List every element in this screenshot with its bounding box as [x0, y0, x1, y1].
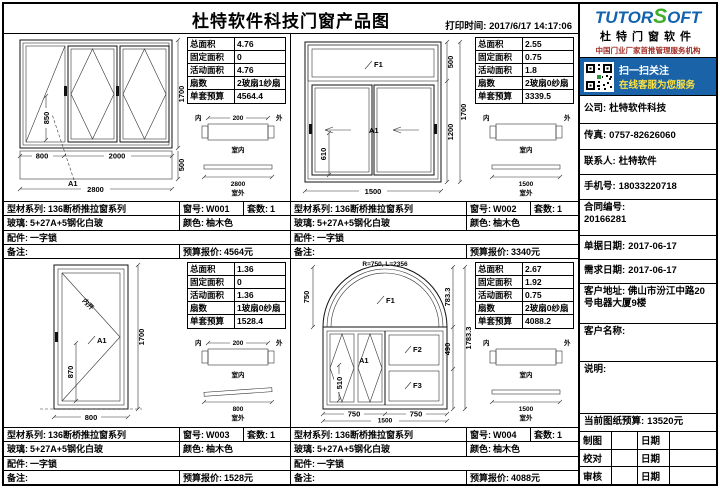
w002-spec-table: 总面积2.55 固定面积0.75 活动面积1.8 扇数2玻扇0纱扇 单套预算33…: [475, 37, 574, 104]
w004-tag: A1: [359, 356, 369, 365]
remark-cell: 备注:: [291, 471, 467, 484]
series-cell: 型材系列:136断桥推拉窗系列: [291, 202, 467, 215]
spec-row: 扇数2玻扇0纱扇: [476, 302, 573, 315]
spec-value: 0.75: [523, 289, 573, 301]
glass-cell: 玻璃:5+27A+5钢化白玻: [291, 216, 467, 229]
detail-out-label: 外: [564, 113, 571, 122]
sidebar-note: 说明:: [580, 362, 716, 414]
spec-label: 单套预算: [476, 315, 523, 328]
w001-drawing: 800 2000 2800 1700 500 850 A1: [4, 34, 196, 198]
info-row: 型材系列:136断桥推拉窗系列 窗号:W003 套数:1: [4, 428, 290, 442]
remark-cell: 备注:: [4, 245, 180, 258]
w004-spec-table: 总面积2.67 固定面积1.92 活动面积0.75 扇数2玻扇0纱扇 单套预算4…: [475, 262, 574, 329]
logo-tutor: TUTOR: [595, 8, 653, 27]
spec-label: 单套预算: [476, 90, 523, 103]
w001-draw-area: 800 2000 2800 1700 500 850 A1 总: [4, 34, 290, 201]
qr-banner: 扫一扫关注 在线客服为您服务: [580, 58, 716, 96]
spec-row: 活动面积0.75: [476, 289, 573, 302]
sidebar-customer: 客户名称:: [580, 324, 716, 362]
w003-section-detail: 内 外 200 室内 800 室外: [188, 334, 288, 422]
quadrant-w002: F1 A1 610 500 1200 1700: [291, 34, 578, 259]
detail-plan-dim: 1500: [519, 406, 534, 413]
quote-cell: 预算报价:3340元: [467, 245, 578, 258]
qr-line1: 扫一扫关注: [619, 62, 695, 77]
spec-row: 扇数2玻扇0纱扇: [476, 77, 573, 90]
spec-row: 单套预算4564.4: [188, 90, 285, 103]
sidebar-contract: 合同编号:20166281: [580, 200, 716, 236]
spec-row: 活动面积1.36: [188, 289, 285, 302]
w001-spec-table: 总面积4.76 固定面积0 活动面积4.76 扇数2玻扇1纱扇 单套预算4564…: [187, 37, 286, 104]
detail-out-label: 外: [276, 113, 283, 122]
logo-subtitle: 杜特门窗软件: [600, 28, 696, 44]
spec-value: 2玻扇0纱扇: [523, 302, 573, 314]
parts-cell: 配件:一字锁: [291, 231, 578, 244]
spec-value: 1528.4: [235, 315, 285, 328]
spec-value: 1玻扇0纱扇: [235, 302, 285, 314]
window-no-cell: 窗号:W001: [180, 202, 244, 215]
w004-info-table: 型材系列:136断桥推拉窗系列 窗号:W004 套数:1 玻璃:5+27A+5钢…: [291, 427, 578, 484]
info-row: 玻璃:5+27A+5钢化白玻 颜色:柚木色: [291, 442, 578, 456]
sidebar-contact: 联系人:杜特软件: [580, 150, 716, 175]
w003-draw-area: 内开 A1 870 1700 800 总面积1.36 固定面积0 活动面积1.3: [4, 259, 290, 427]
w003-dim-1700: 1700: [137, 329, 146, 346]
detail-plan-dim: 2800: [231, 181, 246, 188]
company-sidebar: TUTORSOFT 杜特门窗软件 中国门业厂家首推管理服务机构 扫一扫关注 在线…: [580, 4, 716, 484]
spec-value: 0.75: [523, 51, 573, 63]
w001-dim-1700: 1700: [177, 86, 186, 103]
detail-room-out: 室外: [520, 188, 534, 197]
signoff-blank: [670, 450, 716, 467]
w001-dim-800: 800: [36, 152, 49, 161]
sidebar-need-date: 需求日期:2017-06-17: [580, 260, 716, 284]
signoff-row: 审核日期: [580, 467, 716, 484]
info-row: 配件:一字锁: [4, 457, 290, 471]
window-no-cell: 窗号:W002: [467, 202, 531, 215]
w004-dim-750-arch: 750: [302, 291, 311, 304]
w002-tag: A1: [369, 126, 379, 135]
spec-value: 1.8: [523, 64, 573, 76]
detail-plan-dim: 800: [233, 406, 244, 413]
w003-info-table: 型材系列:136断桥推拉窗系列 窗号:W003 套数:1 玻璃:5+27A+5钢…: [4, 427, 290, 484]
drawing-grid: 800 2000 2800 1700 500 850 A1 总: [4, 34, 578, 484]
signoff-date-label: 日期: [638, 450, 670, 467]
signoff-row: 制图日期: [580, 432, 716, 450]
spec-label: 活动面积: [188, 289, 235, 301]
w004-dim-750-right: 750: [410, 410, 423, 419]
window-no-cell: 窗号:W004: [467, 428, 531, 441]
spec-value: 2.55: [523, 38, 573, 50]
spec-row: 总面积4.76: [188, 38, 285, 51]
quote-cell: 预算报价:4088元: [467, 471, 578, 484]
sets-cell: 套数:1: [244, 202, 290, 215]
w004-section-detail: 内 外 室内 1500 室外: [476, 334, 576, 422]
info-row: 配件:一字锁: [291, 231, 578, 245]
glass-cell: 玻璃:5+27A+5钢化白玻: [4, 442, 180, 455]
w004-dim-1500: 1500: [378, 418, 393, 424]
info-row: 玻璃:5+27A+5钢化白玻 颜色:柚木色: [291, 216, 578, 230]
w004-dim-510: 510: [335, 377, 344, 390]
parts-cell: 配件:一字锁: [4, 457, 290, 470]
info-row: 备注: 预算报价:4088元: [291, 471, 578, 484]
spec-row: 固定面积0: [188, 276, 285, 289]
series-cell: 型材系列:136断桥推拉窗系列: [291, 428, 467, 441]
sidebar-order-date: 单据日期:2017-06-17: [580, 236, 716, 260]
print-time: 打印时间: 2017/6/17 14:17:06: [445, 18, 572, 32]
sidebar-mobile: 手机号:18033220718: [580, 175, 716, 200]
detail-in-label: 内: [483, 113, 490, 122]
w001-dim-500: 500: [177, 159, 186, 172]
spec-value: 1.36: [235, 263, 285, 275]
w004-dim-783: 783.3: [443, 288, 452, 307]
info-row: 备注: 预算报价:4564元: [4, 245, 290, 258]
spec-row: 单套预算3339.5: [476, 90, 573, 103]
quadrant-w004: R=750, L=2356 F1 A1 510: [291, 259, 578, 484]
w004-dim-750-left: 750: [348, 410, 361, 419]
detail-room-out: 室外: [520, 413, 534, 422]
spec-row: 单套预算4088.2: [476, 315, 573, 328]
drawings-area: 杜特软件科技门窗产品图 打印时间: 2017/6/17 14:17:06: [4, 4, 580, 484]
w003-open-note: 内开: [81, 296, 97, 312]
signoff-date-label: 日期: [638, 467, 670, 484]
sets-cell: 套数:1: [244, 428, 290, 441]
spec-row: 单套预算1528.4: [188, 315, 285, 328]
quadrant-w001: 800 2000 2800 1700 500 850 A1 总: [4, 34, 291, 259]
signoff-table: 制图日期 校对日期 审核日期: [580, 432, 716, 484]
spec-value: 4.76: [235, 38, 285, 50]
w002-f1-label: F1: [374, 60, 383, 69]
signoff-date-label: 日期: [638, 432, 670, 449]
info-row: 配件:一字锁: [291, 457, 578, 471]
info-row: 配件:一字锁: [4, 231, 290, 245]
spec-label: 单套预算: [188, 315, 235, 328]
window-no-cell: 窗号:W003: [180, 428, 244, 441]
parts-cell: 配件:一字锁: [4, 231, 290, 244]
spec-label: 单套预算: [188, 90, 235, 103]
signoff-blank: [670, 467, 716, 484]
w001-dim-2800: 2800: [87, 185, 104, 194]
print-time-value: 2017/6/17 14:17:06: [489, 21, 572, 32]
product-sheet: 杜特软件科技门窗产品图 打印时间: 2017/6/17 14:17:06: [2, 2, 718, 486]
spec-label: 固定面积: [476, 51, 523, 63]
w002-drawing: F1 A1 610 500 1200 1700: [293, 34, 478, 198]
spec-value: 0: [235, 51, 285, 63]
spec-row: 扇数2玻扇1纱扇: [188, 77, 285, 90]
spec-row: 固定面积0: [188, 51, 285, 64]
signoff-row: 校对日期: [580, 450, 716, 468]
logo-tagline: 中国门业厂家首推管理服务机构: [596, 45, 701, 56]
logo-s-swoosh: S: [653, 5, 667, 28]
detail-depth-dim: 200: [233, 115, 244, 122]
color-cell: 颜色:柚木色: [467, 442, 578, 455]
spec-label: 扇数: [476, 302, 523, 314]
spec-label: 固定面积: [188, 276, 235, 288]
w002-draw-area: F1 A1 610 500 1200 1700: [291, 34, 578, 201]
spec-label: 扇数: [476, 77, 523, 89]
sidebar-company: 公司:杜特软件科技: [580, 96, 716, 124]
quadrant-w003: 内开 A1 870 1700 800 总面积1.36 固定面积0 活动面积1.3: [4, 259, 291, 484]
detail-room-in: 室内: [232, 370, 245, 379]
info-row: 型材系列:136断桥推拉窗系列 窗号:W004 套数:1: [291, 428, 578, 442]
parts-cell: 配件:一字锁: [291, 457, 578, 470]
glass-cell: 玻璃:5+27A+5钢化白玻: [291, 442, 467, 455]
detail-in-label: 内: [195, 338, 202, 347]
detail-room-in: 室内: [520, 370, 533, 379]
w002-dim-1700: 1700: [459, 104, 468, 121]
spec-label: 总面积: [476, 263, 523, 275]
w004-draw-area: R=750, L=2356 F1 A1 510: [291, 259, 578, 427]
spec-value: 4564.4: [235, 90, 285, 103]
spec-label: 活动面积: [188, 64, 235, 76]
w002-dim-1500: 1500: [365, 187, 382, 196]
signoff-role: 审核: [580, 467, 612, 484]
spec-row: 扇数1玻扇0纱扇: [188, 302, 285, 315]
spec-value: 4088.2: [523, 315, 573, 328]
w001-tag: A1: [68, 179, 78, 188]
detail-room-out: 室外: [232, 413, 246, 422]
w001-dim-850: 850: [42, 112, 51, 125]
print-time-label: 打印时间:: [445, 21, 486, 32]
spec-label: 活动面积: [476, 289, 523, 301]
series-cell: 型材系列:136断桥推拉窗系列: [4, 202, 180, 215]
glass-cell: 玻璃:5+27A+5钢化白玻: [4, 216, 180, 229]
info-row: 玻璃:5+27A+5钢化白玻 颜色:柚木色: [4, 216, 290, 230]
color-cell: 颜色:柚木色: [467, 216, 578, 229]
signoff-blank: [612, 467, 638, 484]
spec-value: 1.92: [523, 276, 573, 288]
detail-room-out: 室外: [232, 188, 246, 197]
info-row: 玻璃:5+27A+5钢化白玻 颜色:柚木色: [4, 442, 290, 456]
w004-dim-1783: 1783.3: [464, 327, 473, 350]
spec-row: 固定面积0.75: [476, 51, 573, 64]
color-cell: 颜色:柚木色: [180, 442, 290, 455]
spec-value: 2.67: [523, 263, 573, 275]
sets-cell: 套数:1: [531, 428, 578, 441]
spec-value: 2玻扇1纱扇: [235, 77, 285, 89]
w004-drawing: R=750, L=2356 F1 A1 510: [293, 259, 478, 423]
spec-value: 4.76: [235, 64, 285, 76]
signoff-blank: [612, 432, 638, 449]
signoff-blank: [612, 450, 638, 467]
detail-out-label: 外: [564, 338, 571, 347]
detail-plan-dim: 1500: [519, 181, 534, 188]
w001-dim-2000: 2000: [109, 152, 126, 161]
w001-section-detail: 内 外 200 室内 2800 室外: [188, 109, 288, 197]
signoff-role: 制图: [580, 432, 612, 449]
spec-value: 3339.5: [523, 90, 573, 103]
qr-code: [584, 62, 614, 92]
sidebar-address: 客户地址: 佛山市汾江中路20号电器大厦9楼: [580, 284, 716, 324]
detail-room-in: 室内: [232, 145, 245, 154]
detail-out-label: 外: [276, 338, 283, 347]
w004-dim-490: 490: [443, 343, 452, 356]
w003-dim-800: 800: [85, 413, 98, 422]
sheet-header: 杜特软件科技门窗产品图 打印时间: 2017/6/17 14:17:06: [4, 4, 578, 34]
quote-cell: 预算报价:4564元: [180, 245, 290, 258]
signoff-role: 校对: [580, 450, 612, 467]
qr-text: 扫一扫关注 在线客服为您服务: [619, 62, 695, 91]
w003-dim-870: 870: [66, 366, 75, 379]
spec-label: 扇数: [188, 302, 235, 314]
tutorsoft-logo: TUTORSOFT: [595, 6, 701, 27]
series-cell: 型材系列:136断桥推拉窗系列: [4, 428, 180, 441]
remark-cell: 备注:: [4, 471, 180, 484]
w004-f3-label: F3: [413, 381, 422, 390]
logo-block: TUTORSOFT 杜特门窗软件 中国门业厂家首推管理服务机构: [580, 4, 716, 58]
w001-info-table: 型材系列:136断桥推拉窗系列 窗号:W001 套数:1 玻璃:5+27A+5钢…: [4, 201, 290, 258]
spec-row: 固定面积1.92: [476, 276, 573, 289]
detail-in-label: 内: [483, 338, 490, 347]
quote-cell: 预算报价:1528元: [180, 471, 290, 484]
spec-row: 总面积2.55: [476, 38, 573, 51]
spec-row: 总面积2.67: [476, 263, 573, 276]
remark-cell: 备注:: [291, 245, 467, 258]
spec-value: 0: [235, 276, 285, 288]
detail-depth-dim: 200: [233, 340, 244, 347]
w002-dim-610: 610: [319, 148, 328, 161]
sets-cell: 套数:1: [531, 202, 578, 215]
w003-tag: A1: [97, 336, 107, 345]
w002-dim-1200: 1200: [446, 124, 455, 141]
logo-oft: OFT: [667, 8, 701, 27]
detail-in-label: 内: [195, 113, 202, 122]
sidebar-budget: 当前图纸预算:13520元: [580, 414, 716, 432]
spec-label: 固定面积: [476, 276, 523, 288]
spec-label: 总面积: [188, 38, 235, 50]
signoff-blank: [670, 432, 716, 449]
color-cell: 颜色:柚木色: [180, 216, 290, 229]
spec-row: 活动面积4.76: [188, 64, 285, 77]
spec-row: 活动面积1.8: [476, 64, 573, 77]
spec-label: 总面积: [476, 38, 523, 50]
w003-spec-table: 总面积1.36 固定面积0 活动面积1.36 扇数1玻扇0纱扇 单套预算1528…: [187, 262, 286, 329]
spec-label: 总面积: [188, 263, 235, 275]
qr-line2: 在线客服为您服务: [619, 77, 695, 91]
info-row: 型材系列:136断桥推拉窗系列 窗号:W002 套数:1: [291, 202, 578, 216]
spec-label: 活动面积: [476, 64, 523, 76]
w004-f1-label: F1: [386, 296, 395, 305]
w002-dim-500: 500: [446, 56, 455, 69]
spec-value: 2玻扇0纱扇: [523, 77, 573, 89]
spec-label: 固定面积: [188, 51, 235, 63]
detail-room-in: 室内: [520, 145, 533, 154]
spec-value: 1.36: [235, 289, 285, 301]
spec-label: 扇数: [188, 77, 235, 89]
sidebar-fax: 传真:0757-82626060: [580, 124, 716, 150]
info-row: 备注: 预算报价:1528元: [4, 471, 290, 484]
w004-f2-label: F2: [413, 345, 422, 354]
spec-row: 总面积1.36: [188, 263, 285, 276]
w002-section-detail: 内 外 室内 1500 室外: [476, 109, 576, 197]
w002-info-table: 型材系列:136断桥推拉窗系列 窗号:W002 套数:1 玻璃:5+27A+5钢…: [291, 201, 578, 258]
info-row: 备注: 预算报价:3340元: [291, 245, 578, 258]
w003-drawing: 内开 A1 870 1700 800: [4, 259, 196, 423]
info-row: 型材系列:136断桥推拉窗系列 窗号:W001 套数:1: [4, 202, 290, 216]
